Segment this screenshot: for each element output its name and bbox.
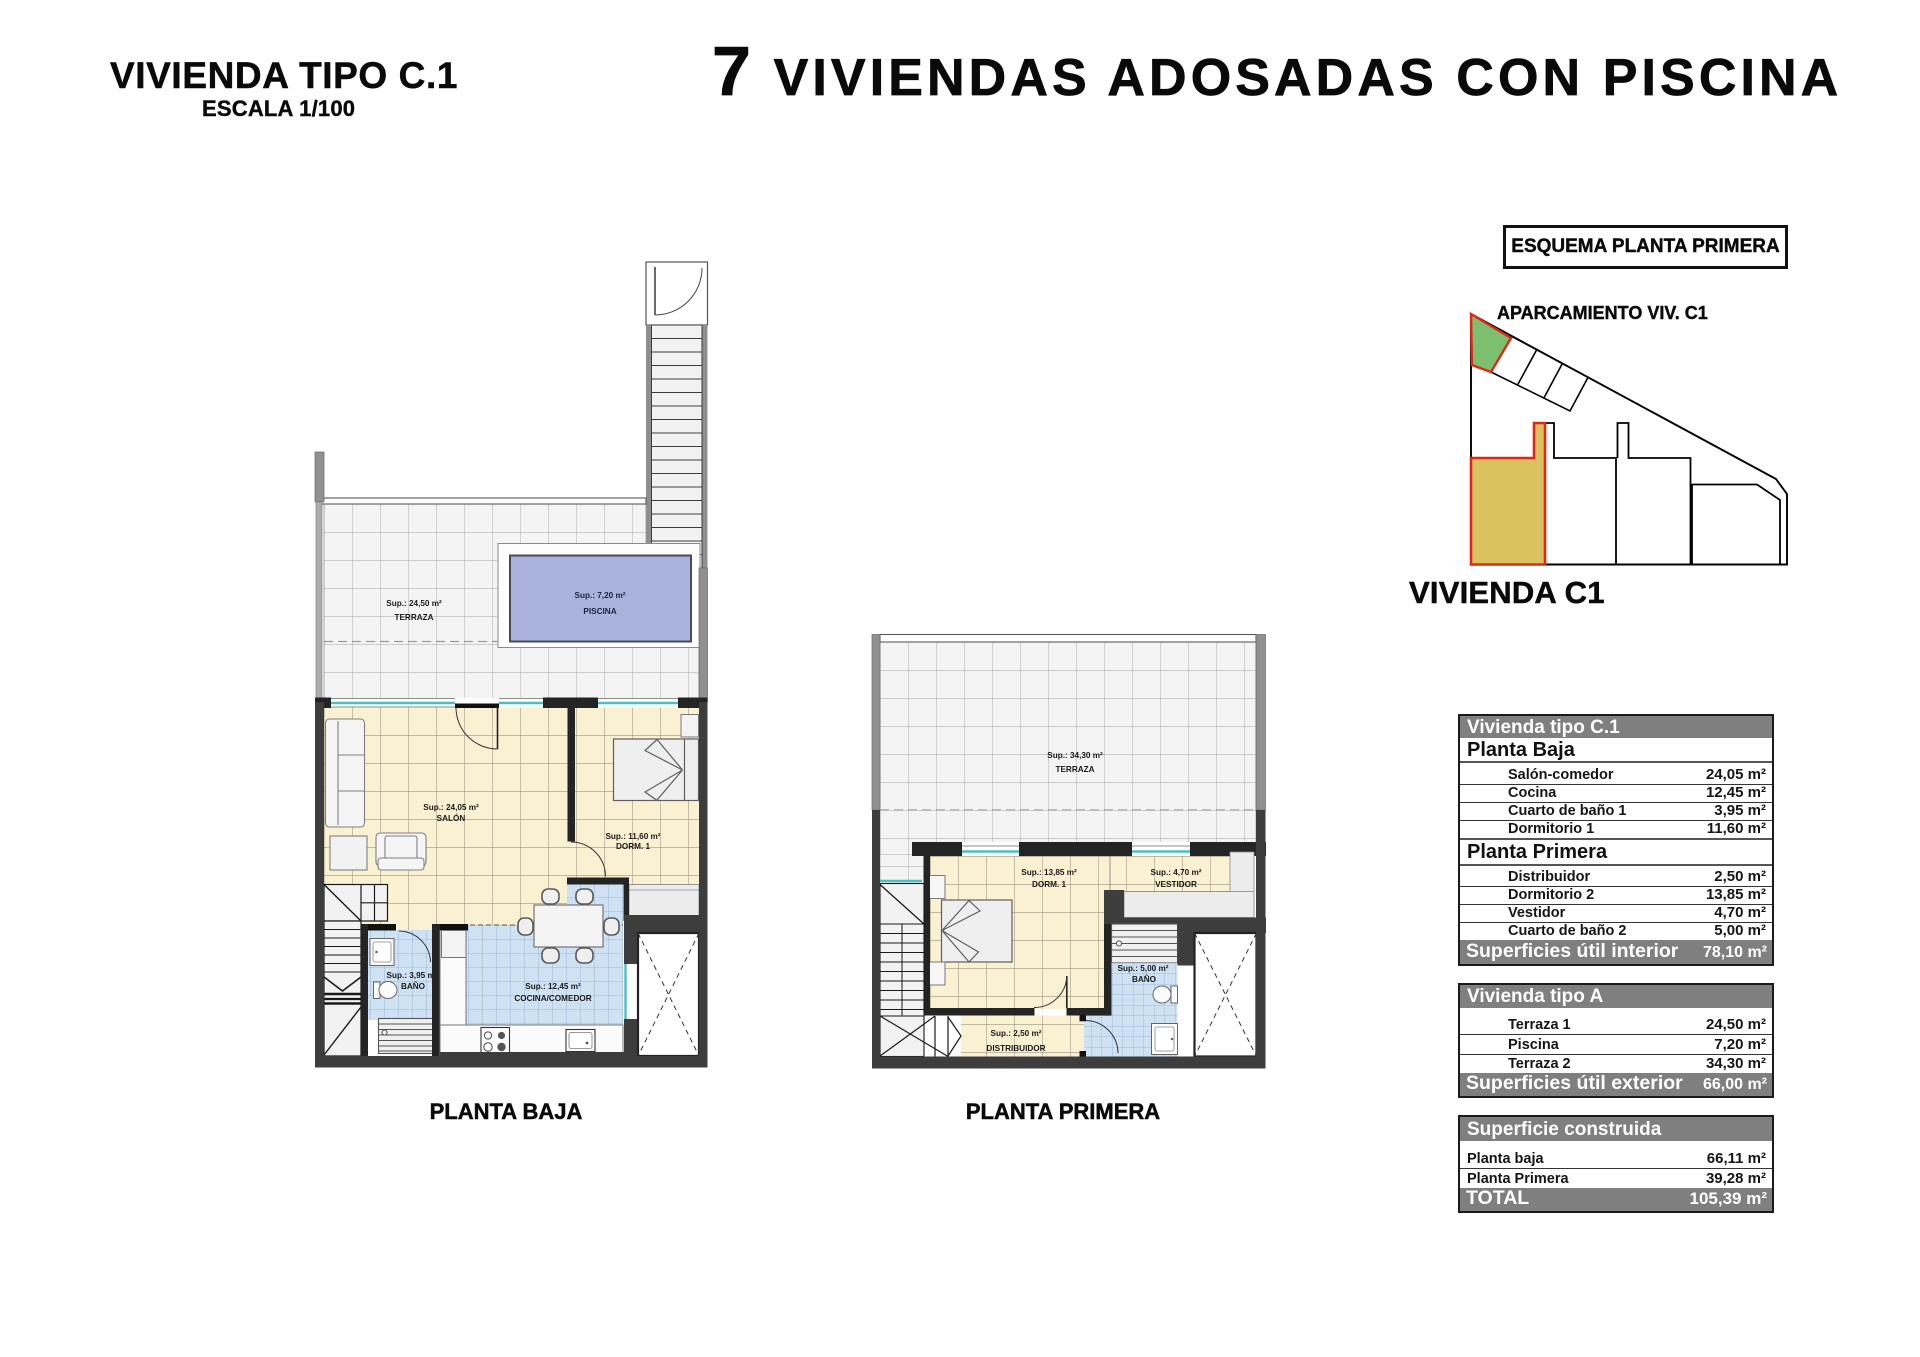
svg-text:Sup.: 34,30 m²: Sup.: 34,30 m²	[1047, 751, 1103, 760]
svg-text:PISCINA: PISCINA	[583, 607, 616, 616]
svg-text:BAÑO: BAÑO	[401, 981, 426, 991]
svg-text:COCINA/COMEDOR: COCINA/COMEDOR	[514, 994, 591, 1003]
svg-text:Sup.: 13,85 m²: Sup.: 13,85 m²	[1021, 868, 1077, 877]
svg-text:TERRAZA: TERRAZA	[394, 613, 433, 622]
svg-text:DISTRIBUIDOR: DISTRIBUIDOR	[986, 1044, 1045, 1053]
svg-text:Sup.: 11,60 m²: Sup.: 11,60 m²	[605, 832, 660, 841]
svg-text:VESTIDOR: VESTIDOR	[1155, 880, 1197, 889]
svg-text:Sup.: 3,95 m²: Sup.: 3,95 m²	[387, 971, 438, 980]
svg-text:DORM. 1: DORM. 1	[1032, 880, 1067, 889]
svg-text:Sup.: 24,50 m²: Sup.: 24,50 m²	[386, 599, 442, 608]
svg-text:Sup.: 7,20 m²: Sup.: 7,20 m²	[575, 591, 626, 600]
svg-text:TERRAZA: TERRAZA	[1055, 765, 1094, 774]
svg-text:BAÑO: BAÑO	[1132, 974, 1157, 984]
svg-text:DORM. 1: DORM. 1	[616, 842, 651, 851]
svg-text:Sup.: 24,05 m²: Sup.: 24,05 m²	[423, 803, 479, 812]
svg-text:SALÓN: SALÓN	[437, 812, 466, 823]
svg-text:Sup.: 2,50 m²: Sup.: 2,50 m²	[991, 1029, 1042, 1038]
svg-text:Sup.: 4,70 m²: Sup.: 4,70 m²	[1151, 868, 1202, 877]
svg-text:Sup.: 12,45 m²: Sup.: 12,45 m²	[525, 982, 581, 991]
svg-text:Sup.: 5,00 m²: Sup.: 5,00 m²	[1118, 964, 1169, 973]
